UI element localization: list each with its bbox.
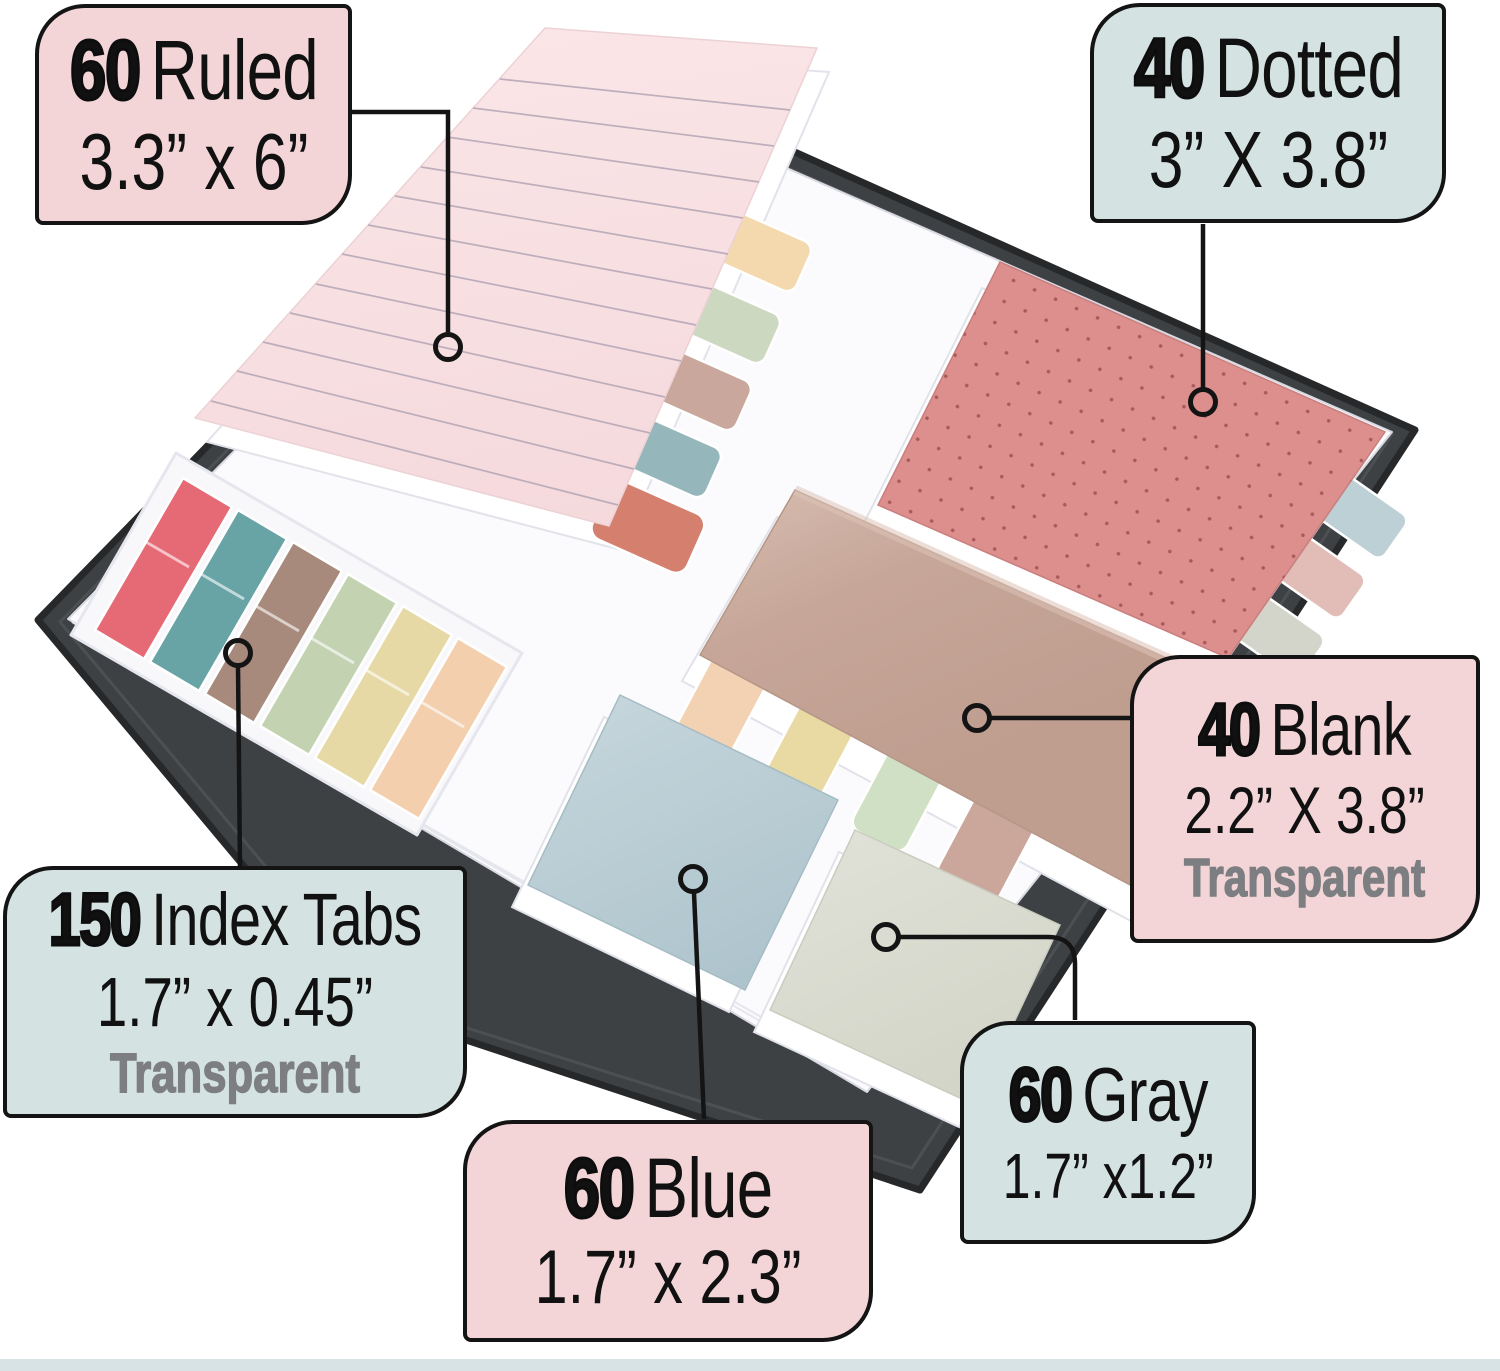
callout-index-tabs-dimensions: 1.7” x 0.45” — [97, 967, 373, 1037]
callout-ruled-count: 60 — [70, 23, 140, 117]
callout-blank-label: Blank — [1271, 688, 1411, 771]
callout-blank-count: 40 — [1199, 688, 1260, 771]
callout-ruled-dimensions: 3.3” x 6” — [79, 122, 308, 202]
bottom-section-band — [0, 1359, 1500, 1371]
callout-index-tabs-title: 150Index Tabs — [49, 883, 422, 957]
callout-gray-dimensions: 1.7” x1.2” — [1003, 1144, 1214, 1208]
callout-gray-label: Gray — [1082, 1053, 1207, 1138]
callout-ruled-label: Ruled — [150, 23, 317, 117]
callout-index-tabs-count: 150 — [49, 878, 141, 961]
callout-dotted: 40Dotted 3” X 3.8” — [1090, 3, 1446, 223]
callout-index-tabs-note: Transparent — [110, 1045, 360, 1101]
callout-dotted-dimensions: 3” X 3.8” — [1148, 120, 1387, 200]
product-infographic: 60Ruled 3.3” x 6” 40Dotted 3” X 3.8” 40B… — [0, 0, 1500, 1371]
callout-ruled-title: 60Ruled — [70, 28, 318, 112]
callout-dotted-label: Dotted — [1214, 21, 1402, 115]
callout-blue-title: 60Blue — [564, 1146, 773, 1230]
callout-index-tabs: 150Index Tabs 1.7” x 0.45” Transparent — [3, 866, 467, 1118]
callout-blank-title: 40Blank — [1199, 693, 1411, 767]
callout-dotted-title: 40Dotted — [1133, 26, 1402, 110]
connector-index-tabs — [238, 667, 240, 866]
callout-blank-dimensions: 2.2” X 3.8” — [1185, 777, 1425, 843]
callout-gray-count: 60 — [1008, 1053, 1071, 1138]
callout-blank: 40Blank 2.2” X 3.8” Transparent — [1130, 655, 1480, 943]
callout-dotted-count: 40 — [1133, 21, 1203, 115]
callout-blue: 60Blue 1.7” x 2.3” — [463, 1120, 873, 1342]
callout-ruled: 60Ruled 3.3” x 6” — [35, 4, 352, 225]
callout-blank-note: Transparent — [1184, 851, 1425, 905]
callout-blue-dimensions: 1.7” x 2.3” — [535, 1240, 802, 1316]
callout-gray: 60Gray 1.7” x1.2” — [960, 1021, 1256, 1244]
callout-gray-title: 60Gray — [1008, 1058, 1207, 1134]
callout-blue-label: Blue — [644, 1141, 772, 1235]
callout-index-tabs-label: Index Tabs — [151, 878, 421, 961]
callout-blue-count: 60 — [564, 1141, 634, 1235]
